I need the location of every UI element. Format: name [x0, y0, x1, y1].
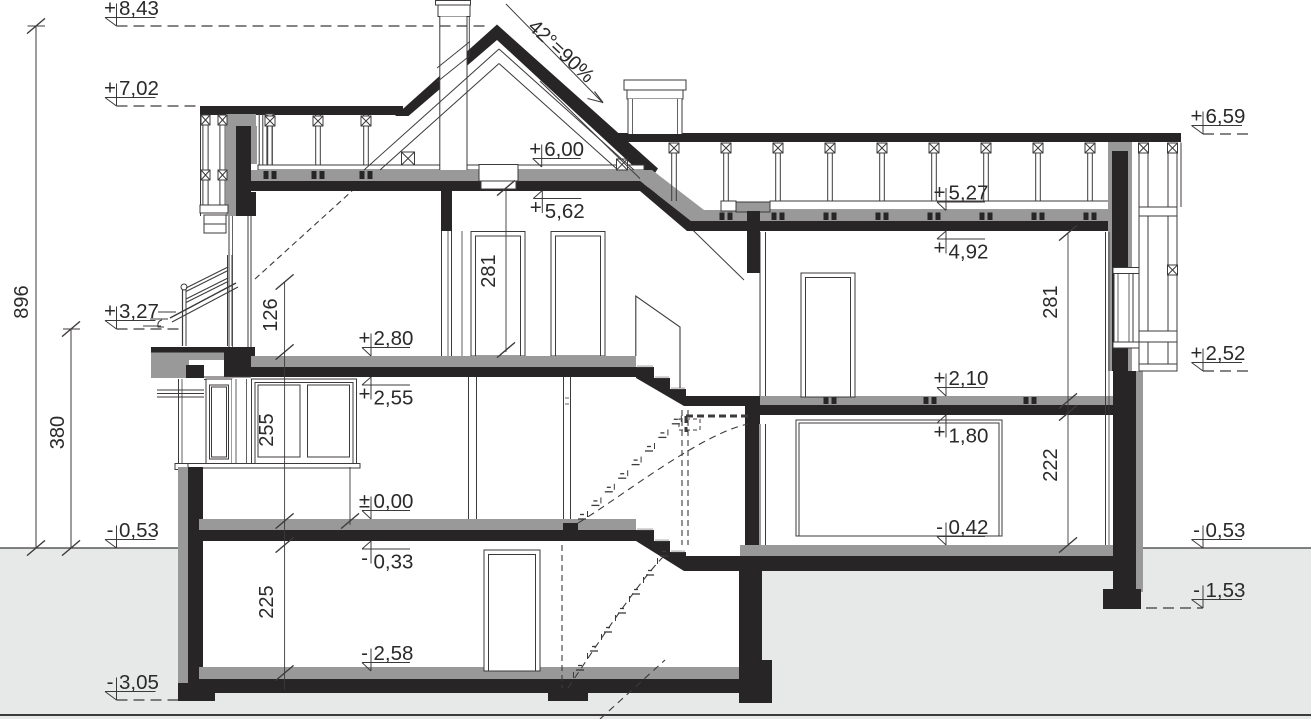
svg-text:255: 255	[256, 413, 278, 446]
svg-text:0,53: 0,53	[1206, 519, 1246, 542]
svg-text:-: -	[107, 671, 114, 694]
svg-text:+: +	[934, 181, 946, 204]
svg-text:380: 380	[47, 416, 69, 449]
svg-text:6,00: 6,00	[544, 138, 584, 161]
svg-text:±: ±	[359, 490, 370, 513]
svg-text:4,92: 4,92	[949, 241, 989, 264]
svg-text:+: +	[359, 383, 371, 406]
svg-text:+: +	[104, 0, 116, 20]
svg-text:1,53: 1,53	[1206, 579, 1246, 602]
svg-text:5,62: 5,62	[545, 200, 585, 223]
svg-text:-: -	[1193, 579, 1200, 602]
svg-text:+: +	[934, 421, 946, 444]
svg-text:2,80: 2,80	[374, 327, 414, 350]
svg-text:+: +	[104, 300, 116, 323]
svg-text:3,27: 3,27	[119, 300, 159, 323]
svg-text:0,42: 0,42	[949, 516, 989, 539]
svg-text:-: -	[361, 547, 368, 570]
svg-text:+: +	[1191, 342, 1203, 365]
svg-text:222: 222	[1040, 448, 1062, 481]
svg-text:2,52: 2,52	[1206, 342, 1246, 365]
svg-text:+: +	[1191, 105, 1203, 128]
svg-text:-: -	[361, 642, 368, 665]
svg-text:225: 225	[256, 585, 278, 618]
svg-text:0,33: 0,33	[374, 551, 414, 574]
svg-text:0,00: 0,00	[374, 490, 414, 513]
svg-text:3,05: 3,05	[119, 671, 159, 694]
svg-text:-: -	[107, 519, 114, 542]
svg-text:+: +	[104, 77, 116, 100]
svg-text:+: +	[529, 138, 541, 161]
svg-text:896: 896	[11, 285, 33, 318]
svg-text:7,02: 7,02	[119, 77, 159, 100]
svg-text:1,80: 1,80	[949, 425, 989, 448]
svg-text:-: -	[1193, 519, 1200, 542]
svg-text:+: +	[934, 367, 946, 390]
svg-text:8,43: 8,43	[119, 0, 159, 20]
svg-text:-: -	[936, 516, 943, 539]
svg-text:281: 281	[478, 254, 500, 287]
svg-text:0,53: 0,53	[119, 519, 159, 542]
svg-text:2,58: 2,58	[374, 642, 414, 665]
svg-text:+: +	[530, 196, 542, 219]
svg-text:2,55: 2,55	[374, 387, 414, 410]
svg-text:6,59: 6,59	[1206, 105, 1246, 128]
svg-text:5,27: 5,27	[949, 182, 989, 205]
svg-text:281: 281	[1040, 285, 1062, 318]
svg-text:+: +	[359, 327, 371, 350]
svg-text:2,10: 2,10	[949, 367, 989, 390]
svg-text:126: 126	[260, 298, 282, 331]
svg-text:+: +	[934, 237, 946, 260]
